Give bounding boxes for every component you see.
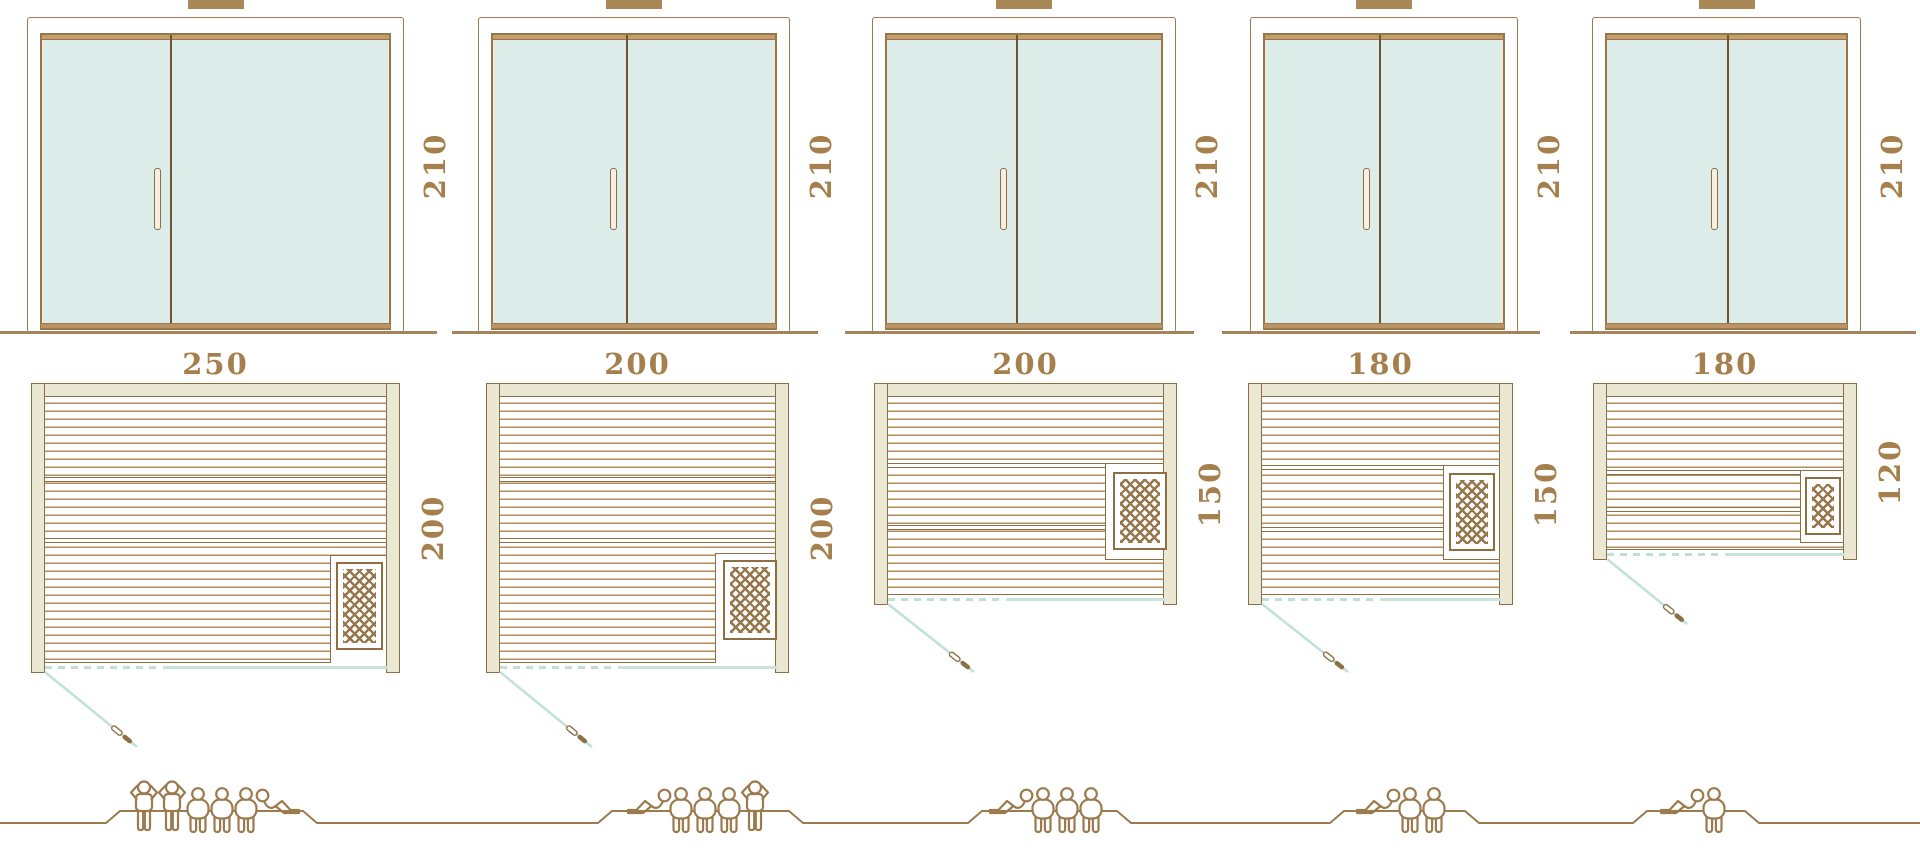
heater-grate-icon [1812,484,1834,528]
door-divider [1727,35,1729,328]
door-threshold [1605,323,1848,329]
roof-vent [1699,0,1755,9]
wall-left [1593,383,1607,560]
wall-right [1843,383,1857,560]
floor-plan [1593,383,1857,560]
door-height-dimension: 210 [1876,131,1908,201]
heater [1805,477,1841,535]
door-glass-panels [1605,33,1848,330]
glass-front-line [1725,553,1845,556]
sauna-column-5: 210 180 120 [0,0,1920,856]
door-opening-dashed-line [1607,553,1719,556]
door-elevation [1592,17,1861,333]
wall-top [1593,383,1857,397]
door-swing [1593,557,1763,667]
depth-dimension: 120 [1874,437,1906,507]
width-dimension: 180 [1593,346,1857,382]
floor-ground-line [1570,331,1916,334]
capacity-group [1642,787,1746,834]
person-sitting-icon [1699,787,1729,834]
door-handle [1711,168,1718,230]
door-handle-icon [1663,604,1685,623]
sauna-size-diagram: 210 250 200 [0,0,1920,856]
